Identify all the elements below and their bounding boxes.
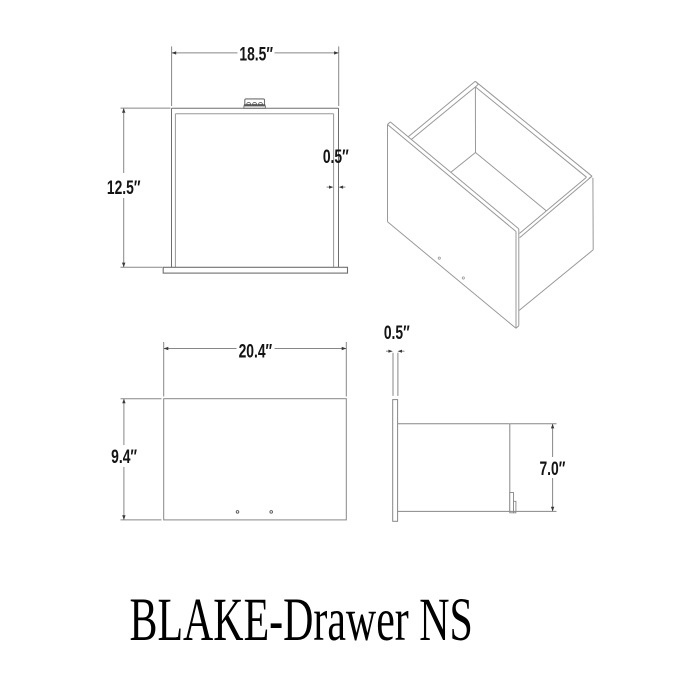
svg-text:18.5″: 18.5″ bbox=[239, 43, 273, 65]
svg-text:20.4″: 20.4″ bbox=[239, 340, 273, 362]
svg-text:7.0″: 7.0″ bbox=[539, 458, 565, 480]
svg-text:12.5″: 12.5″ bbox=[107, 177, 141, 199]
svg-text:9.4″: 9.4″ bbox=[111, 445, 137, 467]
svg-text:0.5″: 0.5″ bbox=[323, 145, 349, 167]
svg-text:0.5″: 0.5″ bbox=[384, 321, 410, 343]
svg-text:BLAKE-Drawer NS: BLAKE-Drawer NS bbox=[130, 586, 473, 654]
